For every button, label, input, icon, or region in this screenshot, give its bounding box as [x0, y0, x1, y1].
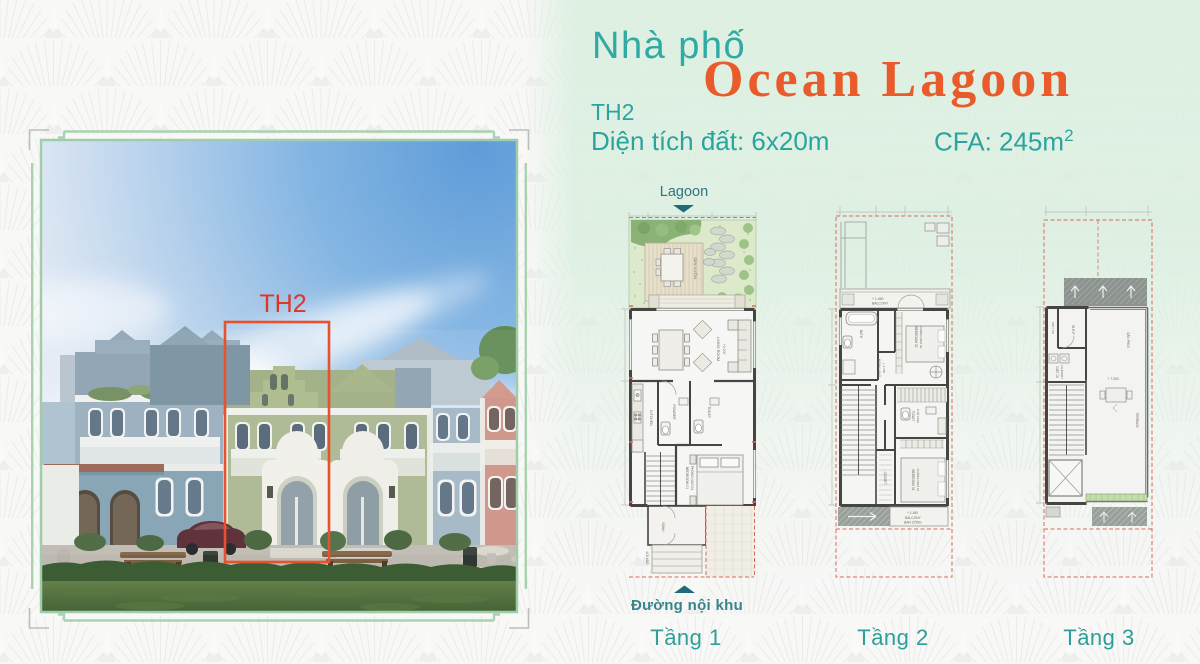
svg-text:+ 7.200: + 7.200: [1107, 377, 1119, 381]
svg-text:GIẶT ỦI: GIẶT ỦI: [1055, 366, 1060, 378]
svg-text:BEDROOM 02: BEDROOM 02: [914, 327, 918, 348]
svg-text:BATH: BATH: [859, 330, 863, 339]
svg-text:SÂN PHƠI: SÂN PHƠI: [1126, 332, 1130, 348]
svg-text:LIVING ROOM: LIVING ROOM: [716, 337, 720, 361]
svg-text:LAUNDRY: LAUNDRY: [1060, 365, 1064, 379]
svg-text:HÀNH LANG: HÀNH LANG: [877, 359, 881, 378]
svg-text:TOILET: TOILET: [707, 406, 711, 418]
svg-text:+ 4.750: + 4.750: [882, 363, 886, 373]
svg-text:PHÒNG NGỦ 01: PHÒNG NGỦ 01: [690, 466, 695, 490]
svg-text:+ 1.450: + 1.450: [872, 297, 884, 301]
svg-text:PHÒNG NGỦ 01: PHÒNG NGỦ 01: [916, 469, 921, 492]
svg-text:TOILET: TOILET: [911, 410, 915, 421]
svg-text:CLOSET: CLOSET: [883, 472, 887, 485]
svg-text:BAN CÔNG: BAN CÔNG: [904, 520, 922, 525]
svg-text:+0.000: +0.000: [722, 344, 726, 355]
svg-text:MÁI / SK: MÁI / SK: [1051, 322, 1055, 334]
svg-text:P.VỆ SINH: P.VỆ SINH: [916, 409, 921, 423]
svg-text:M.E.P: M.E.P: [1071, 325, 1075, 335]
svg-text:BEDROOM 01: BEDROOM 01: [911, 470, 915, 491]
svg-text:BEDROOM 01: BEDROOM 01: [685, 467, 689, 489]
svg-text:+ 1.450: + 1.450: [907, 511, 918, 515]
svg-text:BALCONY: BALCONY: [872, 302, 889, 306]
svg-text:KITCHEN: KITCHEN: [649, 410, 653, 426]
svg-text:SÂN VƯỜN: SÂN VƯỜN: [693, 257, 698, 279]
svg-text:TERRACE: TERRACE: [1135, 412, 1139, 427]
svg-text:BALCONY: BALCONY: [905, 516, 922, 520]
svg-text:LỐI VÀO: LỐI VÀO: [645, 552, 650, 565]
svg-text:POWDER: POWDER: [672, 404, 676, 420]
svg-text:PHÒNG NGỦ 02: PHÒNG NGỦ 02: [919, 326, 924, 349]
svg-text:SẢNH: SẢNH: [661, 522, 666, 532]
